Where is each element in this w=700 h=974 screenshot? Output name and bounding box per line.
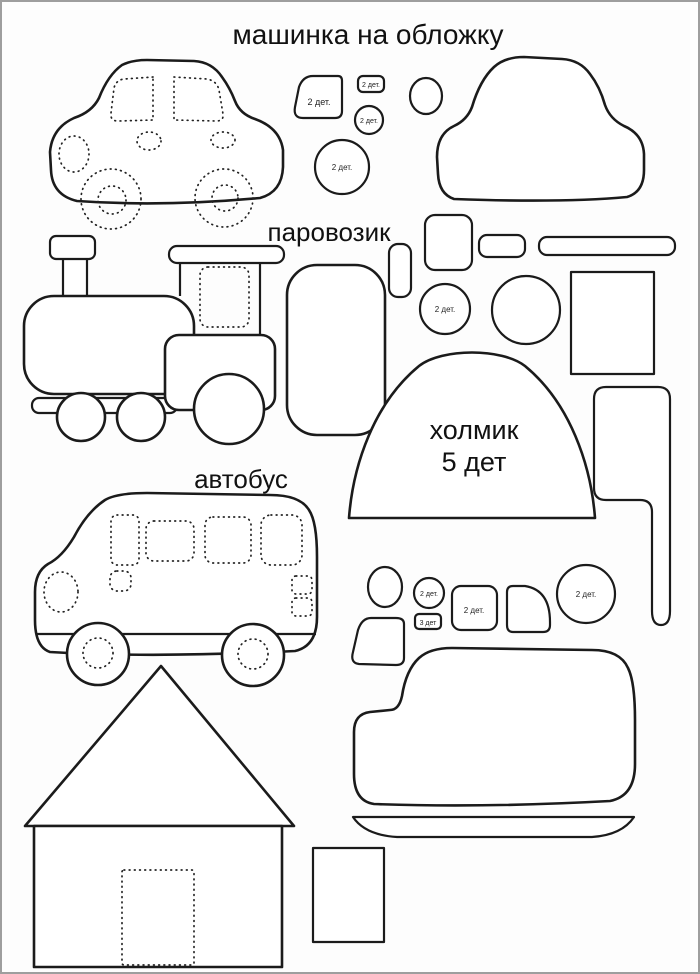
- piece-oval-top-right: [410, 78, 442, 114]
- piece-rounded-rect-small: [479, 235, 525, 257]
- bus-wheel-right: [222, 624, 284, 686]
- piece-small-circle-bottom-label: 2 дет.: [420, 591, 438, 598]
- cover-car-outline: [50, 60, 283, 203]
- piece-strip-vertical: [389, 244, 411, 297]
- bus-body-bottom: [354, 648, 635, 805]
- house-roof: [25, 666, 294, 826]
- train-cab-window: [200, 267, 249, 327]
- piece-tab-top-label: 2 дет.: [362, 82, 380, 89]
- piece-big-circle-bottom-label: 2 дет.: [576, 590, 597, 599]
- piece-bar-long: [539, 237, 675, 255]
- ground-strip: [353, 817, 634, 837]
- piece-big-circle-top-label: 2 дет.: [332, 163, 353, 172]
- piece-small-circle-top-label: 2 дет.: [360, 118, 378, 125]
- car-body-top-right: [437, 57, 644, 201]
- piece-train-circle-label: 2 дет.: [435, 305, 456, 314]
- piece-rect-bottom: [313, 848, 384, 942]
- piece-rounded-rect-tall: [425, 215, 472, 270]
- piece-plain-circle: [492, 276, 560, 344]
- pattern-canvas: машинка на обложку 2 дет. 2 дет. 2 дет. …: [2, 2, 698, 972]
- train-wheel-2: [117, 393, 165, 441]
- hill-count: 5 дет: [442, 447, 507, 477]
- train-chimney-cap: [50, 236, 95, 259]
- piece-square: [571, 272, 654, 374]
- house-body: [34, 826, 282, 967]
- title-train: паровозик: [268, 217, 392, 247]
- title-bus: автобус: [194, 464, 288, 494]
- piece-rounded-rect-large: [287, 265, 385, 435]
- piece-window-top-label: 2 дет.: [307, 97, 330, 107]
- pattern-sheet: машинка на обложку 2 дет. 2 дет. 2 дет. …: [0, 0, 700, 974]
- piece-rounded-square-bottom-label: 2 дет.: [464, 606, 485, 615]
- hill-name: холмик: [430, 415, 519, 445]
- bus-wheel-left: [67, 623, 129, 685]
- train-cab-roof: [169, 246, 284, 263]
- title-cover-car: машинка на обложку: [233, 19, 504, 50]
- piece-window-bottom: [352, 618, 404, 665]
- train-wheel-big: [194, 374, 264, 444]
- piece-oval-bottom: [368, 567, 402, 607]
- piece-tab-bottom-label: 3 дет: [420, 620, 438, 627]
- piece-windshield-bottom: [507, 586, 550, 632]
- train-wheel-1: [57, 393, 105, 441]
